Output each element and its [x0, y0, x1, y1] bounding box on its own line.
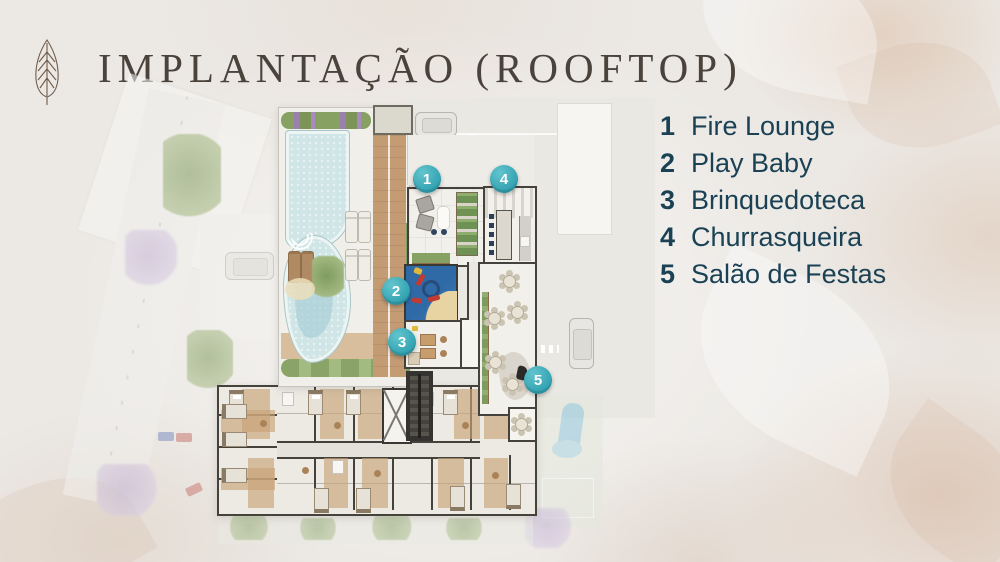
parked-car — [225, 252, 274, 280]
bed — [222, 468, 247, 483]
party-table — [489, 356, 502, 369]
neighbor-roof — [557, 103, 612, 235]
legend-label: Churrasqueira — [691, 219, 862, 256]
legend-number: 1 — [660, 108, 682, 145]
marker-brinquedoteca: 3 — [388, 328, 416, 356]
table — [260, 420, 267, 427]
slide-background: IMPLANTAÇÃO (ROOFTOP) — [0, 0, 1000, 562]
toy-car — [185, 482, 203, 497]
marker-fire-lounge: 1 — [413, 165, 441, 193]
legend-number: 5 — [660, 256, 682, 293]
kids-table — [420, 334, 436, 346]
wood-floor — [320, 389, 344, 439]
legend-label: Play Baby — [691, 145, 813, 182]
fire-table — [437, 206, 450, 230]
lounger — [358, 249, 371, 281]
sink — [520, 236, 530, 247]
legend-number: 3 — [660, 182, 682, 219]
marker-number: 3 — [398, 334, 406, 351]
buffet-garden — [482, 292, 489, 404]
table — [492, 472, 499, 479]
chair — [489, 250, 494, 255]
palm-tree — [312, 256, 344, 300]
legend-item-brinquedoteca: 3 Brinquedoteca — [660, 182, 886, 219]
toy — [412, 326, 418, 331]
parked-car — [569, 318, 594, 369]
legend-number: 4 — [660, 219, 682, 256]
sofa — [415, 195, 435, 214]
salao-de-festas-room — [478, 262, 537, 416]
legend-item-play-baby: 2 Play Baby — [660, 145, 886, 182]
chair — [489, 232, 494, 237]
lounger — [358, 211, 371, 243]
bed — [450, 486, 465, 511]
bed — [346, 390, 361, 415]
party-table — [506, 378, 519, 391]
marker-number: 4 — [500, 171, 508, 188]
kids-table — [420, 348, 436, 359]
tree — [125, 230, 177, 286]
chair — [489, 214, 494, 219]
play-toy — [412, 297, 423, 304]
escalator-rail — [418, 374, 421, 438]
marker-number: 1 — [423, 171, 431, 188]
stool — [440, 350, 447, 357]
toy-car — [176, 433, 192, 442]
tree — [97, 464, 159, 516]
marker-salao-de-festas: 5 — [524, 366, 552, 394]
ottoman — [431, 229, 437, 235]
party-table — [515, 418, 528, 431]
tree — [187, 330, 233, 392]
corridor — [277, 441, 480, 459]
table — [374, 470, 381, 477]
play-baby-mat — [404, 264, 458, 322]
legend-label: Salão de Festas — [691, 256, 886, 293]
tree — [372, 516, 416, 540]
kids-pool — [552, 440, 582, 458]
vertical-garden — [456, 192, 478, 256]
legend-item-churrasqueira: 4 Churrasqueira — [660, 219, 886, 256]
salao-annex-room — [508, 407, 537, 442]
chair — [489, 241, 494, 246]
tree — [163, 134, 221, 224]
marker-number: 5 — [534, 372, 542, 389]
bed — [222, 432, 247, 447]
bathroom — [332, 460, 344, 474]
bed — [506, 484, 521, 509]
elevator-core — [406, 371, 433, 441]
lounger — [345, 249, 358, 281]
legend: 1 Fire Lounge 2 Play Baby 3 Brinquedotec… — [660, 108, 886, 293]
party-table — [488, 312, 501, 325]
legend-label: Brinquedoteca — [691, 182, 865, 219]
table — [302, 467, 309, 474]
bed — [222, 404, 247, 419]
wood-floor — [484, 458, 508, 508]
party-table — [511, 306, 524, 319]
tree — [300, 518, 340, 540]
legend-number: 2 — [660, 145, 682, 182]
table — [462, 422, 469, 429]
tree — [446, 518, 486, 540]
toy-shelf — [408, 352, 420, 365]
toy-car — [158, 432, 174, 441]
tree — [230, 516, 272, 540]
hedge — [281, 112, 371, 129]
table — [334, 422, 341, 429]
marker-number: 2 — [392, 283, 400, 300]
legend-item-fire-lounge: 1 Fire Lounge — [660, 108, 886, 145]
lounger — [345, 211, 358, 243]
walkway-landing — [373, 105, 413, 135]
stool — [440, 336, 447, 343]
legend-item-salao-de-festas: 5 Salão de Festas — [660, 256, 886, 293]
bed — [308, 390, 323, 415]
sand-stone — [285, 278, 315, 300]
bathroom — [282, 392, 294, 406]
bed — [443, 390, 458, 415]
chair — [489, 223, 494, 228]
bed — [314, 488, 329, 513]
parked-car — [415, 112, 457, 137]
bed — [356, 488, 371, 513]
marker-churrasqueira: 4 — [490, 165, 518, 193]
wood-floor — [358, 389, 382, 439]
legend-label: Fire Lounge — [691, 108, 835, 145]
dining-table — [496, 210, 512, 260]
ottoman — [441, 229, 447, 235]
marker-play-baby: 2 — [382, 277, 410, 305]
party-table — [503, 275, 516, 288]
